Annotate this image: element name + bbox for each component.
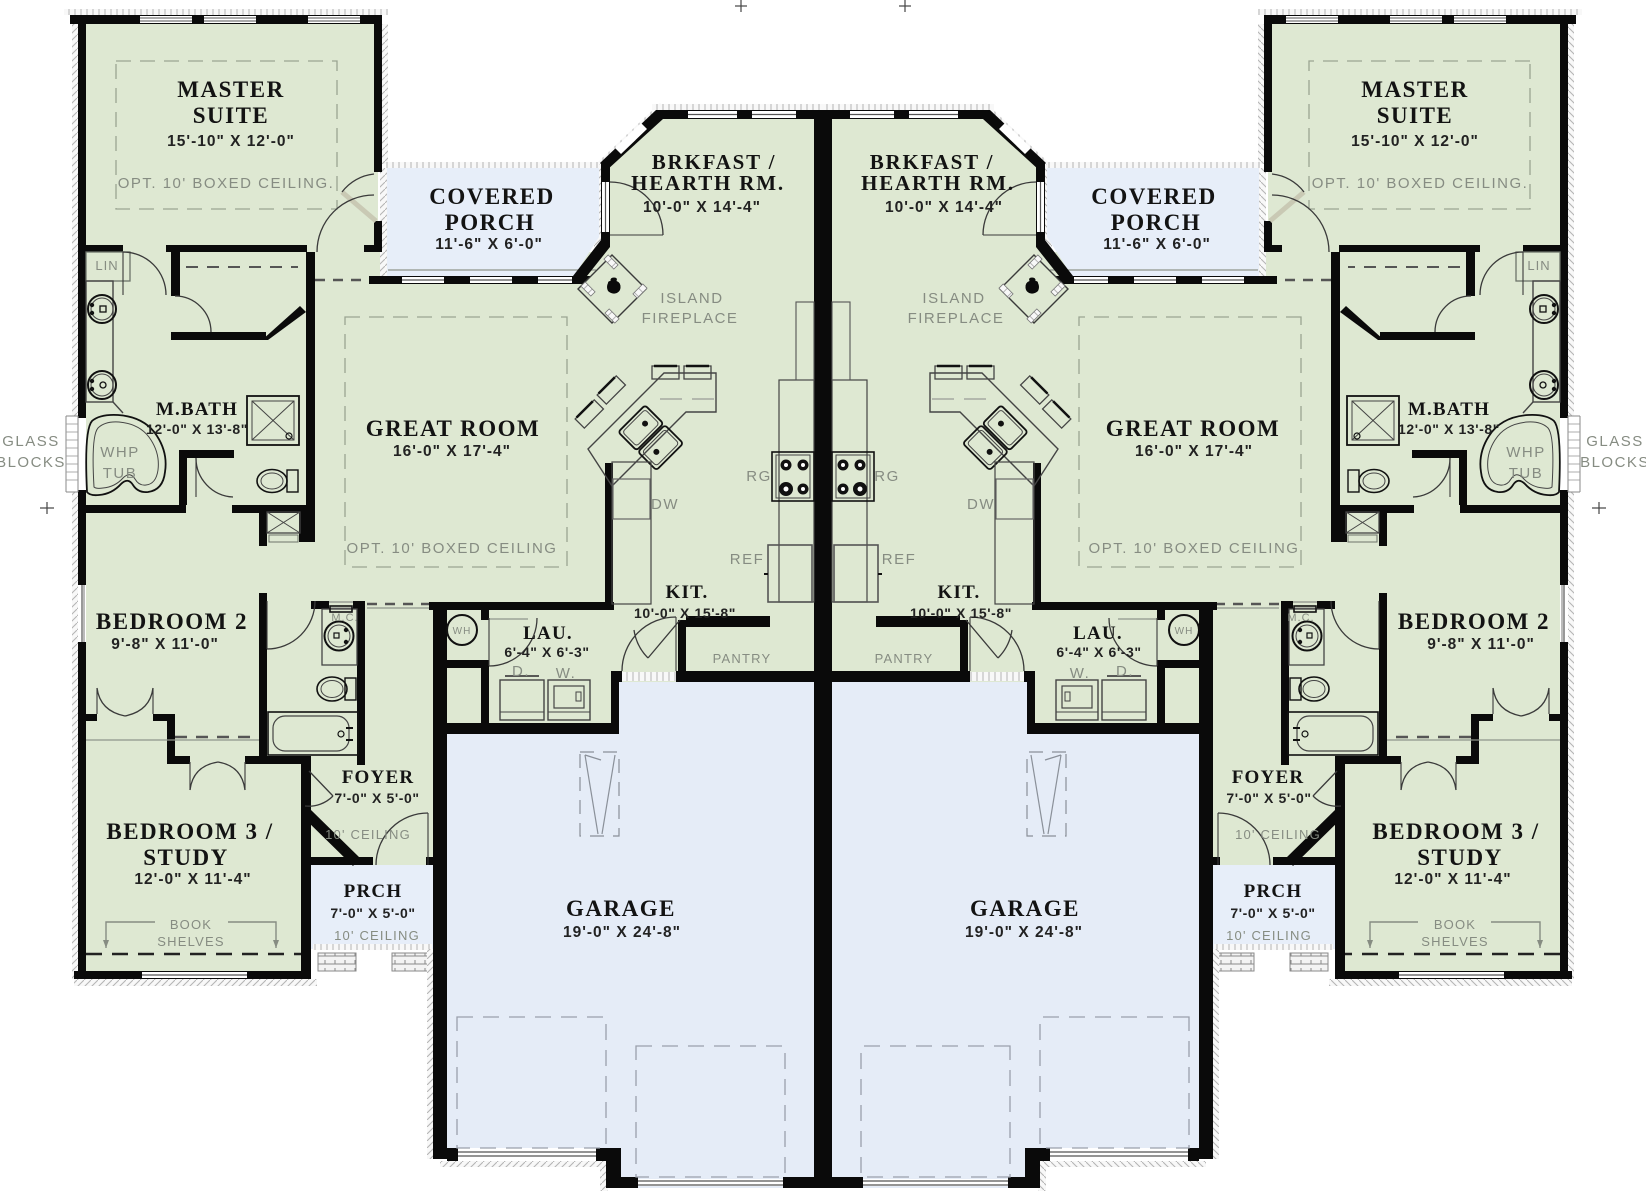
- svg-text:7'-0" X 5'-0": 7'-0" X 5'-0": [334, 790, 419, 806]
- svg-text:W.: W.: [556, 665, 577, 682]
- svg-text:RG: RG: [746, 468, 772, 485]
- svg-text:BEDROOM 2: BEDROOM 2: [96, 609, 248, 634]
- svg-text:PRCH: PRCH: [344, 881, 403, 902]
- svg-text:9'-8" X 11'-0": 9'-8" X 11'-0": [111, 636, 219, 653]
- svg-text:PANTRY: PANTRY: [875, 651, 934, 666]
- svg-text:GARAGE: GARAGE: [970, 896, 1080, 921]
- svg-text:DW: DW: [967, 496, 995, 513]
- svg-text:12'-0" X 11'-4": 12'-0" X 11'-4": [1394, 871, 1511, 888]
- svg-text:10' CEILING: 10' CEILING: [334, 928, 420, 943]
- svg-text:OPT. 10' BOXED CEILING: OPT. 10' BOXED CEILING: [347, 540, 558, 557]
- svg-text:GLASS: GLASS: [1586, 433, 1644, 450]
- svg-text:SUITE: SUITE: [1377, 103, 1454, 128]
- svg-text:10' CEILING: 10' CEILING: [325, 827, 411, 842]
- svg-text:SHELVES: SHELVES: [157, 934, 224, 949]
- svg-text:ISLAND: ISLAND: [660, 290, 723, 307]
- svg-text:BEDROOM 3 /: BEDROOM 3 /: [1372, 819, 1539, 844]
- svg-text:7'-0" X 5'-0": 7'-0" X 5'-0": [330, 905, 415, 921]
- svg-text:BEDROOM 2: BEDROOM 2: [1398, 609, 1550, 634]
- svg-text:SUITE: SUITE: [193, 103, 270, 128]
- svg-text:12'-0" X 13'-8": 12'-0" X 13'-8": [146, 421, 248, 437]
- svg-text:16'-0" X 17'-4": 16'-0" X 17'-4": [1135, 443, 1253, 460]
- svg-text:MASTER: MASTER: [1361, 77, 1468, 102]
- svg-text:LIN: LIN: [95, 258, 118, 273]
- svg-text:19'-0" X 24'-8": 19'-0" X 24'-8": [965, 924, 1083, 941]
- svg-text:MASTER: MASTER: [177, 77, 284, 102]
- svg-text:6'-4" X 6'-3": 6'-4" X 6'-3": [504, 644, 589, 660]
- svg-text:STUDY: STUDY: [1417, 845, 1502, 870]
- svg-text:OPT. 10' BOXED CEILING: OPT. 10' BOXED CEILING: [1089, 540, 1300, 557]
- svg-text:BLOCKS: BLOCKS: [1580, 454, 1646, 471]
- svg-text:M.C.: M.C.: [331, 612, 358, 624]
- svg-text:TUB: TUB: [103, 465, 138, 482]
- svg-text:DW: DW: [651, 496, 679, 513]
- svg-text:10'-0" X 15'-8": 10'-0" X 15'-8": [634, 605, 736, 621]
- svg-text:BEDROOM 3 /: BEDROOM 3 /: [106, 819, 273, 844]
- svg-text:GLASS: GLASS: [2, 433, 60, 450]
- svg-text:SHELVES: SHELVES: [1421, 934, 1488, 949]
- svg-text:COVERED: COVERED: [1091, 184, 1217, 209]
- svg-text:OPT. 10' BOXED CEILING.: OPT. 10' BOXED CEILING.: [1312, 175, 1529, 192]
- svg-text:WH: WH: [453, 626, 472, 637]
- svg-text:PRCH: PRCH: [1244, 881, 1303, 902]
- svg-text:LAU.: LAU.: [523, 623, 573, 644]
- svg-text:7'-0" X 5'-0": 7'-0" X 5'-0": [1230, 905, 1315, 921]
- svg-text:GREAT ROOM: GREAT ROOM: [1106, 416, 1281, 441]
- svg-text:M.BATH: M.BATH: [1408, 399, 1490, 420]
- svg-text:11'-6" X 6'-0": 11'-6" X 6'-0": [1103, 236, 1211, 253]
- svg-text:WHP: WHP: [1506, 444, 1546, 461]
- svg-text:10'-0" X 14'-4": 10'-0" X 14'-4": [885, 199, 1003, 216]
- svg-text:M.BATH: M.BATH: [156, 399, 238, 420]
- svg-text:GREAT ROOM: GREAT ROOM: [366, 416, 541, 441]
- svg-text:LIN: LIN: [1527, 258, 1550, 273]
- svg-text:BOOK: BOOK: [170, 917, 212, 932]
- svg-text:GARAGE: GARAGE: [566, 896, 676, 921]
- svg-text:BOOK: BOOK: [1434, 917, 1476, 932]
- svg-text:12'-0" X 13'-8": 12'-0" X 13'-8": [1398, 421, 1500, 437]
- svg-text:PANTRY: PANTRY: [713, 651, 772, 666]
- svg-text:KIT.: KIT.: [938, 582, 981, 603]
- svg-text:10'-0" X 14'-4": 10'-0" X 14'-4": [643, 199, 761, 216]
- svg-text:10'-0" X 15'-8": 10'-0" X 15'-8": [910, 605, 1012, 621]
- svg-text:11'-6" X 6'-0": 11'-6" X 6'-0": [435, 236, 543, 253]
- svg-text:FOYER: FOYER: [1232, 767, 1305, 788]
- svg-text:STUDY: STUDY: [143, 845, 228, 870]
- svg-text:6'-4" X 6'-3": 6'-4" X 6'-3": [1056, 644, 1141, 660]
- svg-text:KIT.: KIT.: [666, 582, 709, 603]
- svg-text:REF: REF: [730, 551, 765, 568]
- svg-text:WH: WH: [1175, 626, 1194, 637]
- svg-text:OPT. 10' BOXED CEILING.: OPT. 10' BOXED CEILING.: [118, 175, 335, 192]
- svg-text:HEARTH RM.: HEARTH RM.: [631, 171, 785, 195]
- svg-text:FIREPLACE: FIREPLACE: [642, 310, 739, 327]
- svg-text:REF: REF: [882, 551, 917, 568]
- svg-text:COVERED: COVERED: [429, 184, 555, 209]
- svg-text:HEARTH RM.: HEARTH RM.: [861, 171, 1015, 195]
- svg-text:7'-0" X 5'-0": 7'-0" X 5'-0": [1226, 790, 1311, 806]
- svg-text:M.C.: M.C.: [1287, 612, 1314, 624]
- svg-text:ISLAND: ISLAND: [922, 290, 985, 307]
- svg-text:10' CEILING: 10' CEILING: [1226, 928, 1312, 943]
- svg-text:WHP: WHP: [100, 444, 140, 461]
- svg-text:15'-10" X 12'-0": 15'-10" X 12'-0": [167, 133, 295, 150]
- svg-text:16'-0" X 17'-4": 16'-0" X 17'-4": [393, 443, 511, 460]
- svg-text:TUB: TUB: [1509, 465, 1544, 482]
- svg-text:PORCH: PORCH: [445, 210, 536, 235]
- svg-text:BLOCKS: BLOCKS: [0, 454, 66, 471]
- svg-text:D.: D.: [1116, 663, 1134, 680]
- svg-text:19'-0" X 24'-8": 19'-0" X 24'-8": [563, 924, 681, 941]
- svg-text:W.: W.: [1070, 665, 1091, 682]
- svg-text:9'-8" X 11'-0": 9'-8" X 11'-0": [1427, 636, 1535, 653]
- svg-text:LAU.: LAU.: [1073, 623, 1123, 644]
- svg-text:D.: D.: [512, 663, 530, 680]
- svg-text:FOYER: FOYER: [342, 767, 415, 788]
- svg-text:FIREPLACE: FIREPLACE: [908, 310, 1005, 327]
- svg-text:10' CEILING: 10' CEILING: [1235, 827, 1321, 842]
- svg-text:RG: RG: [874, 468, 900, 485]
- svg-text:12'-0" X 11'-4": 12'-0" X 11'-4": [134, 871, 251, 888]
- svg-text:PORCH: PORCH: [1111, 210, 1202, 235]
- svg-text:15'-10" X 12'-0": 15'-10" X 12'-0": [1351, 133, 1479, 150]
